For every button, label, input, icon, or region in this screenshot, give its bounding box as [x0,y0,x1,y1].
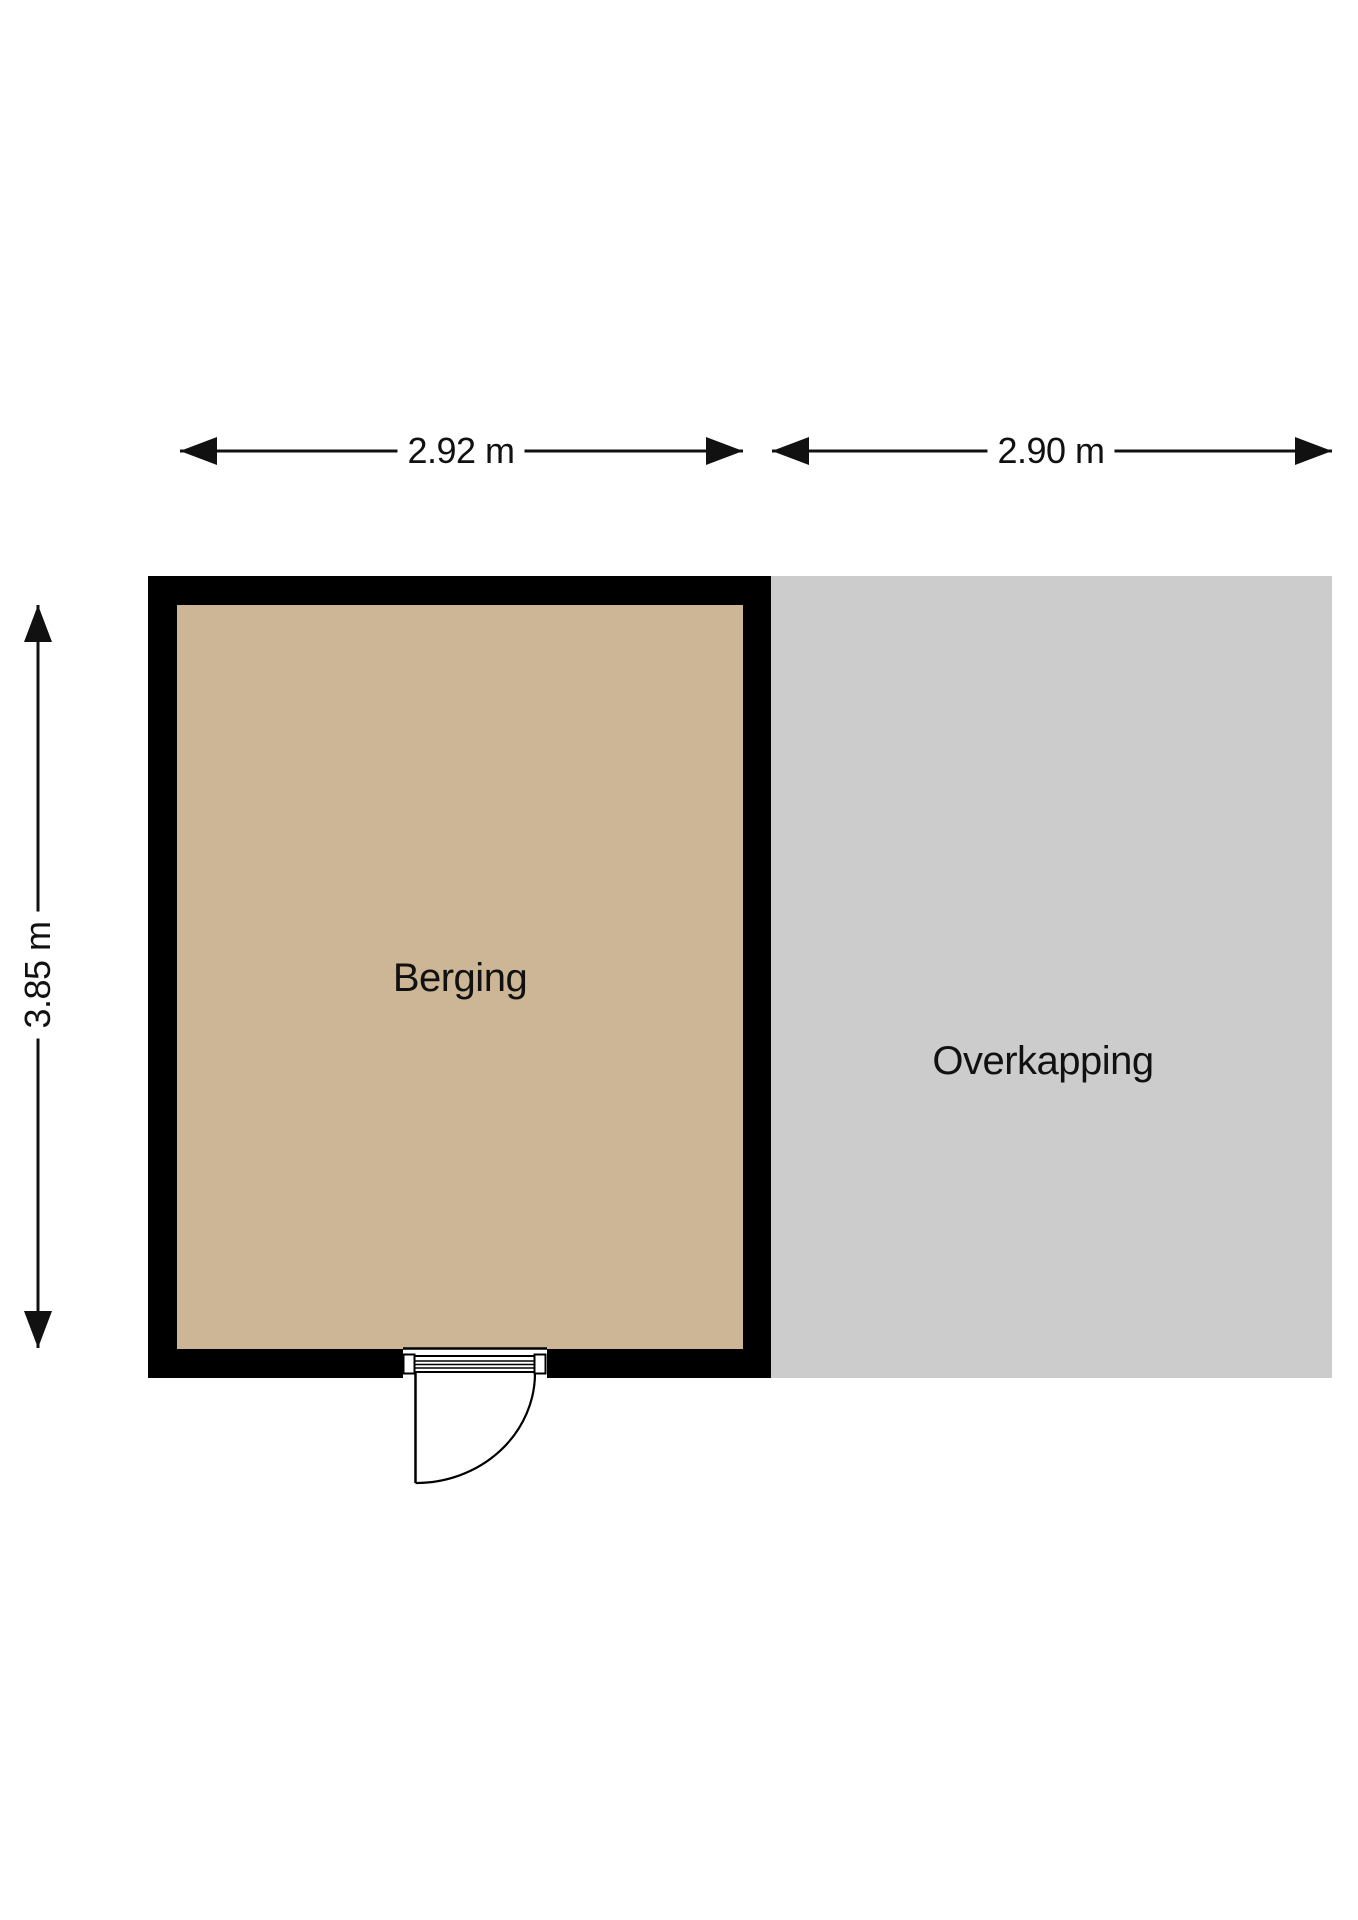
dimension-label-overkapping-width: 2.90 m [987,431,1114,471]
room-label-overkapping: Overkapping [932,1041,1153,1081]
arrowhead-down-icon [24,1311,52,1348]
arrowhead-left-icon [180,437,217,465]
door-jamb-left [404,1355,415,1374]
floorplan-canvas: Berging Overkapping 2.92 m 2.90 m 3.85 m [0,0,1358,1920]
door-jamb-right [535,1355,546,1374]
arrowhead-right-icon [1295,437,1332,465]
door-symbol [403,1349,547,1484]
arrowhead-right-icon [706,437,743,465]
floorplan-linework [0,0,1358,1920]
arrowhead-left-icon [772,437,809,465]
arrowhead-up-icon [24,605,52,642]
dimension-label-berging-height: 3.85 m [18,911,58,1038]
dimension-label-berging-width: 2.92 m [397,431,524,471]
room-label-berging: Berging [393,958,527,998]
door-swing-arc [416,1373,536,1483]
